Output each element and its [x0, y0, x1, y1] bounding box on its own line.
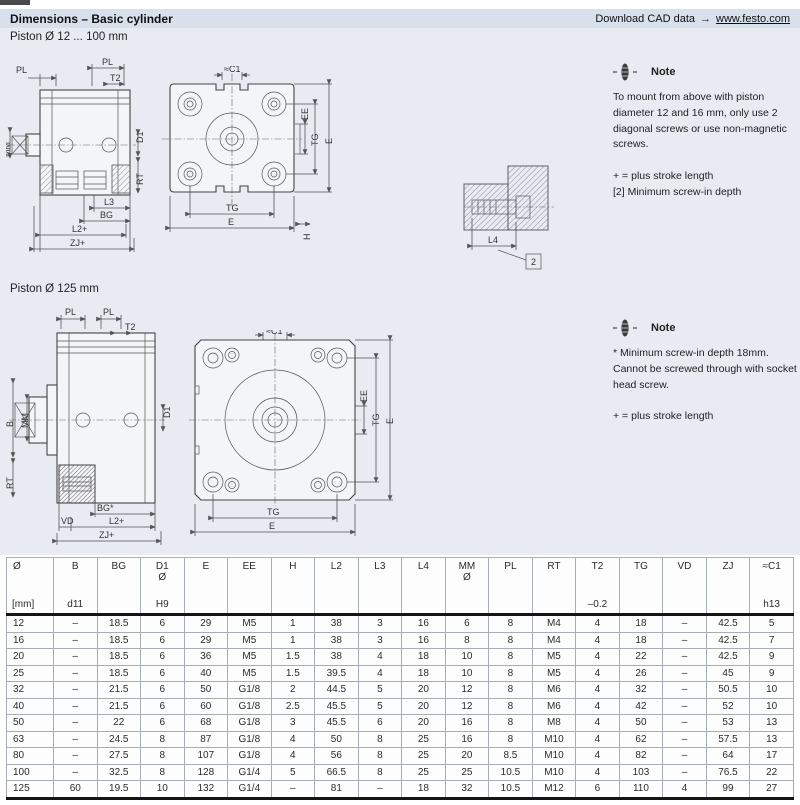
table-cell: 68 [184, 715, 228, 732]
dim-label-t2-125: T2 [125, 322, 136, 332]
table-cell: – [663, 748, 707, 765]
table-cell: 12 [445, 682, 489, 699]
dim-label-l3: L3 [104, 197, 114, 207]
table-cell: 27 [750, 781, 794, 799]
table-cell: 50.5 [706, 682, 750, 699]
table-cell: 19.5 [97, 781, 141, 799]
table-cell: 25 [7, 665, 54, 682]
table-cell: G1/8 [228, 715, 272, 732]
table-cell: 50 [7, 715, 54, 732]
table-cell: 63 [7, 731, 54, 748]
table-cell: 107 [184, 748, 228, 765]
page-header: Dimensions – Basic cylinder Download CAD… [0, 9, 800, 28]
dimensions-table-wrap: Ø[mm]Bd11BGD1ØH9EEEHL2L3L4MMØPLRTT2–0.2T… [6, 557, 794, 800]
table-row: 100–32.58128G1/4566.58252510.5M104103–76… [7, 764, 794, 781]
table-cell: – [663, 649, 707, 666]
col-header-B: Bd11 [54, 558, 98, 615]
scan-artifact [0, 0, 30, 5]
table-cell: 4 [358, 665, 402, 682]
table-cell: 4 [576, 731, 620, 748]
table-cell: 26 [619, 665, 663, 682]
table-row: 40–21.5660G1/82.545.5520128M6442–5210 [7, 698, 794, 715]
col-header-EE: EE [228, 558, 272, 615]
table-cell: 10 [750, 698, 794, 715]
table-cell: 56 [315, 748, 359, 765]
table-cell: 4 [271, 731, 315, 748]
table-cell: 125 [7, 781, 54, 799]
table-cell: 8 [141, 748, 185, 765]
cad-download: Download CAD data → www.festo.com [595, 13, 790, 25]
table-cell: 16 [445, 731, 489, 748]
table-row: 25–18.5640M51.539.5418108M5426–459 [7, 665, 794, 682]
table-cell: 2.5 [271, 698, 315, 715]
dim-label-vd-125: VD [61, 516, 74, 526]
table-cell: G1/4 [228, 781, 272, 799]
ref-label-2: 2 [531, 257, 536, 267]
table-cell: 4 [576, 764, 620, 781]
table-cell: 39.5 [315, 665, 359, 682]
table-cell: 38 [315, 632, 359, 649]
table-cell: 8 [489, 698, 533, 715]
table-cell: M6 [532, 682, 576, 699]
table-cell: M5 [228, 632, 272, 649]
drawing-screw-detail: L4 2 [450, 158, 562, 276]
table-cell: 10 [141, 781, 185, 799]
col-header-PL: PL [489, 558, 533, 615]
drawing-side-view-small: PL PL T2 MM D1 RT L3 BG L2+ ZJ+ [6, 56, 156, 261]
legend-min-screw-depth: [2] Minimum screw-in depth [613, 185, 797, 201]
table-cell: 4 [576, 649, 620, 666]
table-cell: 4 [271, 748, 315, 765]
table-cell: 128 [184, 764, 228, 781]
table-cell: 10.5 [489, 781, 533, 799]
col-header-TG: TG [619, 558, 663, 615]
table-cell: – [358, 781, 402, 799]
table-cell: – [663, 682, 707, 699]
table-cell: 10 [445, 649, 489, 666]
section1-title: Piston Ø 12 ... 100 mm [10, 31, 128, 43]
note2-legend: + = plus stroke length [613, 409, 797, 425]
table-cell: 45.5 [315, 715, 359, 732]
table-cell: 5 [358, 682, 402, 699]
dim-label-pl-right-125: PL [103, 307, 114, 317]
cad-download-label: Download CAD data [595, 13, 695, 25]
table-cell: 50 [619, 715, 663, 732]
table-cell: 20 [7, 649, 54, 666]
table-cell: 16 [402, 615, 446, 633]
table-cell: – [54, 682, 98, 699]
table-cell: 60 [54, 781, 98, 799]
table-cell: 17 [750, 748, 794, 765]
dim-label-e-b-large: E [269, 521, 275, 531]
table-cell: 8 [489, 632, 533, 649]
table-cell: 36 [184, 649, 228, 666]
note2-title: Note [651, 320, 675, 337]
table-cell: 4 [576, 748, 620, 765]
dim-label-b-125: B [5, 421, 15, 427]
table-cell: – [663, 715, 707, 732]
col-header-VD: VD [663, 558, 707, 615]
table-row: 80–27.58107G1/8456825208.5M10482–6417 [7, 748, 794, 765]
table-cell: 8 [358, 731, 402, 748]
legend-plus-stroke: + = plus stroke length [613, 169, 797, 185]
table-cell: 3 [271, 715, 315, 732]
table-cell: 21.5 [97, 698, 141, 715]
drawing-side-view-large: PL PL T2 B MM D1 RT BG* VD L2+ ZJ+ [5, 305, 177, 550]
dim-label-rt: RT [135, 173, 145, 185]
table-cell: 62 [619, 731, 663, 748]
table-cell: 12 [445, 698, 489, 715]
table-cell: M10 [532, 731, 576, 748]
table-cell: – [663, 632, 707, 649]
dim-label-l4: L4 [488, 235, 498, 245]
table-cell: 13 [750, 731, 794, 748]
table-cell: – [271, 781, 315, 799]
table-cell: – [54, 665, 98, 682]
table-cell: 103 [619, 764, 663, 781]
table-cell: 6 [141, 665, 185, 682]
table-cell: 8 [489, 715, 533, 732]
dim-label-l2: L2+ [72, 224, 87, 234]
table-cell: 1.5 [271, 665, 315, 682]
table-cell: 52 [706, 698, 750, 715]
table-cell: 40 [7, 698, 54, 715]
table-row: 20–18.5636M51.538418108M5422–42.59 [7, 649, 794, 666]
table-cell: – [54, 764, 98, 781]
table-cell: – [54, 698, 98, 715]
table-cell: 12 [7, 615, 54, 633]
dim-label-bg: BG [100, 210, 113, 220]
table-cell: 6 [358, 715, 402, 732]
col-header-RT: RT [532, 558, 576, 615]
table-cell: M4 [532, 632, 576, 649]
table-row: 50–22668G1/8345.5620168M8450–5313 [7, 715, 794, 732]
table-cell: 18.5 [97, 632, 141, 649]
table-cell: 16 [7, 632, 54, 649]
table-cell: 4 [576, 632, 620, 649]
arrow-right-icon: → [700, 13, 711, 25]
dim-label-tg-b-large: TG [267, 507, 280, 517]
table-cell: 81 [315, 781, 359, 799]
table-cell: 8 [141, 764, 185, 781]
col-header-L4: L4 [402, 558, 446, 615]
dimensions-table: Ø[mm]Bd11BGD1ØH9EEEHL2L3L4MMØPLRTT2–0.2T… [6, 557, 794, 800]
dim-label-ee-small: EE [300, 108, 310, 120]
table-cell: 38 [315, 615, 359, 633]
table-body: 12–18.5629M513831668M4418–42.5516–18.562… [7, 615, 794, 799]
table-cell: 6 [141, 615, 185, 633]
page-title: Dimensions – Basic cylinder [10, 12, 173, 26]
table-cell: 44.5 [315, 682, 359, 699]
note1-body: To mount from above with piston diameter… [613, 90, 797, 153]
table-row: 32–21.5650G1/8244.5520128M6432–50.510 [7, 682, 794, 699]
table-cell: 4 [576, 682, 620, 699]
table-cell: 18.5 [97, 665, 141, 682]
table-cell: 5 [358, 698, 402, 715]
table-cell: 22 [619, 649, 663, 666]
table-cell: – [54, 632, 98, 649]
table-cell: G1/8 [228, 731, 272, 748]
table-cell: M5 [532, 665, 576, 682]
table-cell: 32 [445, 781, 489, 799]
table-cell: 6 [141, 649, 185, 666]
table-cell: M5 [228, 665, 272, 682]
dim-label-tg-v-small: TG [310, 134, 320, 147]
col-header-MM: MMØ [445, 558, 489, 615]
dim-label-l2-125: L2+ [109, 516, 124, 526]
dim-label-pl-right: PL [102, 57, 113, 67]
table-cell: M8 [532, 715, 576, 732]
table-cell: 3 [358, 632, 402, 649]
table-cell: 8 [489, 731, 533, 748]
dim-label-h-small: H [302, 234, 312, 241]
table-cell: 132 [184, 781, 228, 799]
table-cell: 18.5 [97, 649, 141, 666]
table-cell: 87 [184, 731, 228, 748]
table-cell: 4 [576, 715, 620, 732]
dim-label-c1-large: ≈C1 [266, 330, 282, 336]
table-cell: 1.5 [271, 649, 315, 666]
note2-header: Note [613, 318, 797, 338]
dim-label-tg-b-small: TG [226, 203, 239, 213]
table-cell: 1 [271, 615, 315, 633]
table-cell: 32 [7, 682, 54, 699]
screw-note-icon [613, 62, 639, 82]
table-cell: 32.5 [97, 764, 141, 781]
table-cell: – [663, 731, 707, 748]
table-cell: 4 [576, 615, 620, 633]
table-row: 12–18.5629M513831668M4418–42.55 [7, 615, 794, 633]
table-cell: 64 [706, 748, 750, 765]
festo-link[interactable]: www.festo.com [716, 13, 790, 25]
drawing-front-view-small: ≈C1 EE TG E TG E H [158, 66, 343, 246]
table-cell: – [54, 748, 98, 765]
col-header-E: E [184, 558, 228, 615]
dim-label-zj: ZJ+ [70, 238, 85, 248]
table-cell: 66.5 [315, 764, 359, 781]
table-cell: 60 [184, 698, 228, 715]
table-cell: 57.5 [706, 731, 750, 748]
dim-label-rt-125: RT [5, 477, 15, 489]
table-row: 63–24.5887G1/8450825168M10462–57.513 [7, 731, 794, 748]
table-cell: 5 [750, 615, 794, 633]
table-cell: M5 [228, 649, 272, 666]
dim-label-t2: T2 [110, 73, 121, 83]
table-cell: 25 [402, 748, 446, 765]
table-cell: 21.5 [97, 682, 141, 699]
table-cell: 5 [271, 764, 315, 781]
datasheet-page: Dimensions – Basic cylinder Download CAD… [0, 0, 800, 805]
table-cell: M10 [532, 764, 576, 781]
table-cell: 20 [402, 682, 446, 699]
dim-label-e-v-large: E [385, 418, 395, 424]
col-header-L2: L2 [315, 558, 359, 615]
table-cell: 6 [576, 781, 620, 799]
table-cell: 7 [750, 632, 794, 649]
dim-label-tg-v-large: TG [371, 414, 381, 427]
table-cell: 13 [750, 715, 794, 732]
table-cell: 8 [358, 748, 402, 765]
table-cell: 25 [402, 731, 446, 748]
table-cell: 10.5 [489, 764, 533, 781]
table-cell: 24.5 [97, 731, 141, 748]
table-cell: 50 [315, 731, 359, 748]
table-cell: 110 [619, 781, 663, 799]
screw-note-icon [613, 318, 639, 338]
table-cell: M12 [532, 781, 576, 799]
table-cell: 80 [7, 748, 54, 765]
table-cell: 22 [750, 764, 794, 781]
table-head: Ø[mm]Bd11BGD1ØH9EEEHL2L3L4MMØPLRTT2–0.2T… [7, 558, 794, 615]
table-cell: 42.5 [706, 615, 750, 633]
table-cell: 16 [402, 632, 446, 649]
table-cell: 25 [445, 764, 489, 781]
table-cell: 100 [7, 764, 54, 781]
table-cell: – [663, 665, 707, 682]
table-cell: 10 [750, 682, 794, 699]
table-cell: – [663, 764, 707, 781]
table-cell: 8 [358, 764, 402, 781]
table-cell: G1/8 [228, 748, 272, 765]
table-cell: 18 [402, 665, 446, 682]
table-cell: 9 [750, 649, 794, 666]
table-cell: 9 [750, 665, 794, 682]
dim-label-c1-small: ≈C1 [224, 66, 240, 74]
table-cell: 1 [271, 632, 315, 649]
table-cell: 20 [445, 748, 489, 765]
table-cell: 18 [402, 781, 446, 799]
dim-label-zj-125: ZJ+ [99, 530, 114, 540]
table-cell: M5 [228, 615, 272, 633]
section2-title: Piston Ø 125 mm [10, 283, 99, 295]
dim-label-ee-large: EE [359, 390, 369, 402]
note2-body: * Minimum screw-in depth 18mm. Cannot be… [613, 346, 797, 393]
col-header-ZJ: ZJ [706, 558, 750, 615]
table-cell: 18 [619, 615, 663, 633]
table-cell: – [54, 649, 98, 666]
table-cell: 8 [489, 649, 533, 666]
table-cell: 8 [141, 731, 185, 748]
legend-plus-stroke: + = plus stroke length [613, 409, 797, 425]
table-cell: – [663, 698, 707, 715]
table-cell: 53 [706, 715, 750, 732]
col-header-T2: T2–0.2 [576, 558, 620, 615]
table-cell: M10 [532, 748, 576, 765]
table-cell: M5 [532, 649, 576, 666]
table-cell: – [54, 715, 98, 732]
dim-label-e-v-small: E [324, 138, 334, 144]
table-cell: 3 [358, 615, 402, 633]
table-cell: – [54, 731, 98, 748]
col-header-≈C1: ≈C1h13 [750, 558, 794, 615]
col-header-L3: L3 [358, 558, 402, 615]
table-cell: 82 [619, 748, 663, 765]
dim-label-d1: D1 [135, 131, 145, 143]
table-cell: 4 [663, 781, 707, 799]
table-cell: 42.5 [706, 632, 750, 649]
table-cell: G1/4 [228, 764, 272, 781]
table-cell: 8.5 [489, 748, 533, 765]
table-cell: 50 [184, 682, 228, 699]
table-cell: 76.5 [706, 764, 750, 781]
table-cell: 18.5 [97, 615, 141, 633]
table-cell: 8 [489, 615, 533, 633]
dim-label-pl-left: PL [16, 65, 27, 75]
table-cell: 6 [141, 698, 185, 715]
table-cell: 8 [489, 682, 533, 699]
table-cell: G1/8 [228, 682, 272, 699]
table-cell: 99 [706, 781, 750, 799]
note-block-2: Note * Minimum screw-in depth 18mm. Cann… [613, 318, 797, 425]
dim-label-e-b-small: E [228, 217, 234, 227]
dim-label-pl-left-125: PL [65, 307, 76, 317]
table-cell: 25 [402, 764, 446, 781]
table-cell: – [54, 615, 98, 633]
table-cell: 8 [489, 665, 533, 682]
table-cell: G1/8 [228, 698, 272, 715]
dim-label-mm-125: MM [20, 413, 30, 428]
table-cell: 29 [184, 632, 228, 649]
table-cell: 6 [141, 632, 185, 649]
table-cell: 42.5 [706, 649, 750, 666]
table-cell: 18 [619, 632, 663, 649]
table-cell: 18 [402, 649, 446, 666]
note1-header: Note [613, 62, 797, 82]
dim-label-mm: MM [6, 142, 12, 157]
drawing-front-view-large: ≈C1 EE TG E TG E [185, 330, 405, 548]
table-cell: 32 [619, 682, 663, 699]
table-cell: 27.5 [97, 748, 141, 765]
table-cell: 16 [445, 715, 489, 732]
table-cell: 22 [97, 715, 141, 732]
col-header-Ø: Ø[mm] [7, 558, 54, 615]
table-cell: – [663, 615, 707, 633]
col-header-H: H [271, 558, 315, 615]
col-header-BG: BG [97, 558, 141, 615]
table-cell: 6 [141, 682, 185, 699]
table-cell: M4 [532, 615, 576, 633]
dim-label-d1-125: D1 [162, 406, 172, 418]
note1-legend: + = plus stroke length [2] Minimum screw… [613, 169, 797, 201]
col-header-D1: D1ØH9 [141, 558, 185, 615]
table-cell: 29 [184, 615, 228, 633]
dim-label-bg-125: BG* [97, 503, 114, 513]
table-cell: 8 [445, 632, 489, 649]
table-cell: 6 [141, 715, 185, 732]
table-cell: 2 [271, 682, 315, 699]
table-cell: 4 [358, 649, 402, 666]
table-row: 1256019.510132G1/4–81–183210.5M126110499… [7, 781, 794, 799]
table-header-row: Ø[mm]Bd11BGD1ØH9EEEHL2L3L4MMØPLRTT2–0.2T… [7, 558, 794, 615]
table-cell: 38 [315, 649, 359, 666]
table-cell: 45.5 [315, 698, 359, 715]
note1-title: Note [651, 64, 675, 81]
table-cell: 6 [445, 615, 489, 633]
table-cell: 42 [619, 698, 663, 715]
table-cell: 45 [706, 665, 750, 682]
table-cell: 10 [445, 665, 489, 682]
table-row: 16–18.5629M513831688M4418–42.57 [7, 632, 794, 649]
note-block-1: Note To mount from above with piston dia… [613, 62, 797, 201]
table-cell: 20 [402, 715, 446, 732]
table-cell: 4 [576, 698, 620, 715]
table-cell: 20 [402, 698, 446, 715]
table-cell: 40 [184, 665, 228, 682]
table-cell: M6 [532, 698, 576, 715]
table-cell: 4 [576, 665, 620, 682]
